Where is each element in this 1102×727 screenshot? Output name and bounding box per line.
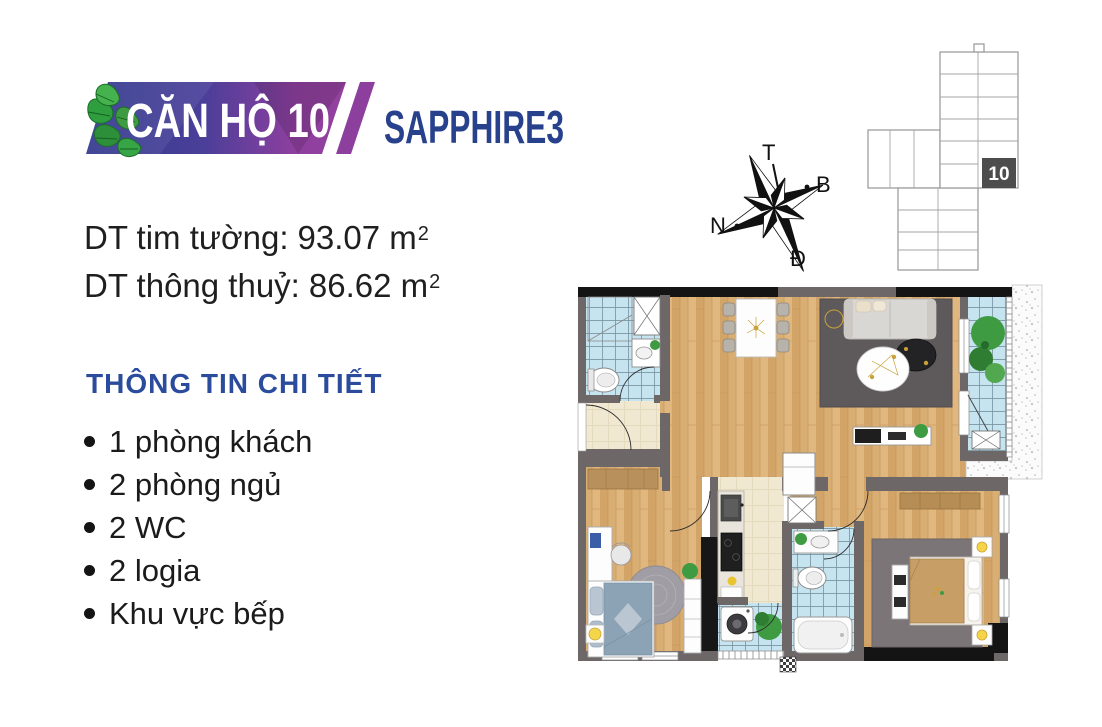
logo-unit-label: CĂN HỘ 10	[126, 93, 330, 148]
logo-building-label: SAPPHIRE3	[384, 101, 564, 153]
lamp-icon	[977, 630, 987, 640]
area-gross: DT tim tường:93.07 m2	[84, 212, 440, 260]
compass-label-south: N	[710, 213, 726, 238]
bullet-icon	[84, 436, 95, 447]
area-net-sup: 2	[429, 271, 440, 293]
refrigerator	[783, 453, 815, 495]
list-item: 1 phòng khách	[84, 420, 312, 463]
list-item-label: 2 logia	[109, 549, 200, 592]
bullet-icon	[84, 522, 95, 533]
plant-icon	[682, 563, 698, 579]
compass-label-west: T	[762, 140, 775, 165]
list-item-label: 2 WC	[109, 506, 187, 549]
sofa-pillow	[873, 301, 886, 311]
balcony-door-gap	[959, 391, 969, 435]
plant-icon	[650, 340, 660, 350]
area-info: DT tim tường:93.07 m2 DT thông thuỷ:86.6…	[84, 212, 440, 308]
list-item-label: 2 phòng ngủ	[109, 463, 281, 506]
list-item: Khu vực bếp	[84, 592, 312, 635]
flowers-icon	[728, 577, 737, 586]
area-gross-value: 93.07 m	[298, 219, 417, 256]
stove	[721, 533, 742, 571]
lamp-icon	[977, 542, 987, 552]
floor-plan	[576, 281, 1046, 673]
area-net-label: DT thông thuỷ:	[84, 267, 300, 304]
brochure-page: CĂN HỘ 10 SAPPHIRE3 DT tim tường:93.07 m…	[0, 0, 1102, 727]
sink-basin	[636, 347, 652, 359]
dresser	[892, 565, 908, 619]
list-item: 2 WC	[84, 506, 312, 549]
building-key-plan: 10	[858, 40, 1028, 280]
bed-pillow	[968, 561, 980, 589]
balcony-railing	[718, 651, 784, 659]
keyplan-west-wing	[868, 130, 940, 188]
plant-icon	[795, 533, 807, 545]
coffee-table-white	[857, 347, 909, 391]
area-net-value: 86.62 m	[309, 267, 428, 304]
balcony-railing	[1007, 297, 1013, 457]
sink-basin	[811, 536, 829, 548]
drain-hatch	[780, 657, 796, 672]
list-item: 2 logia	[84, 549, 312, 592]
sofa-pillow	[856, 301, 871, 312]
compass-icon: T B N Đ	[700, 126, 850, 274]
bullet-icon	[84, 565, 95, 576]
dining-area	[723, 299, 789, 357]
shelf-unit	[684, 579, 701, 653]
area-gross-label: DT tim tường:	[84, 219, 289, 256]
compass-label-east: Đ	[790, 246, 806, 271]
details-list: 1 phòng khách 2 phòng ngủ 2 WC 2 logia K…	[84, 420, 312, 635]
logo-banner: CĂN HỘ 10 SAPPHIRE3	[84, 76, 574, 168]
entry-hall	[588, 469, 658, 489]
list-item-label: 1 phòng khách	[109, 420, 312, 463]
bullet-icon	[84, 479, 95, 490]
bullet-icon	[84, 608, 95, 619]
list-item: 2 phòng ngủ	[84, 463, 312, 506]
details-heading: THÔNG TIN CHI TIẾT	[86, 368, 382, 400]
compass-label-north: B	[816, 172, 831, 197]
desk-chair	[611, 545, 631, 565]
entrance-door-gap	[578, 403, 586, 451]
bedroom-2-wardrobe	[701, 537, 718, 659]
area-net: DT thông thuỷ:86.62 m2	[84, 260, 440, 308]
list-item-label: Khu vực bếp	[109, 592, 285, 635]
bed-blanket	[910, 559, 964, 623]
hall-cabinet	[588, 469, 658, 489]
keyplan-unit-number: 10	[988, 164, 1009, 185]
area-gross-sup: 2	[418, 223, 429, 245]
lamp-icon	[589, 628, 601, 640]
laptop	[590, 533, 601, 548]
bed-pillow	[968, 593, 980, 621]
bed-pillow	[590, 587, 603, 615]
plant-icon	[914, 424, 928, 438]
